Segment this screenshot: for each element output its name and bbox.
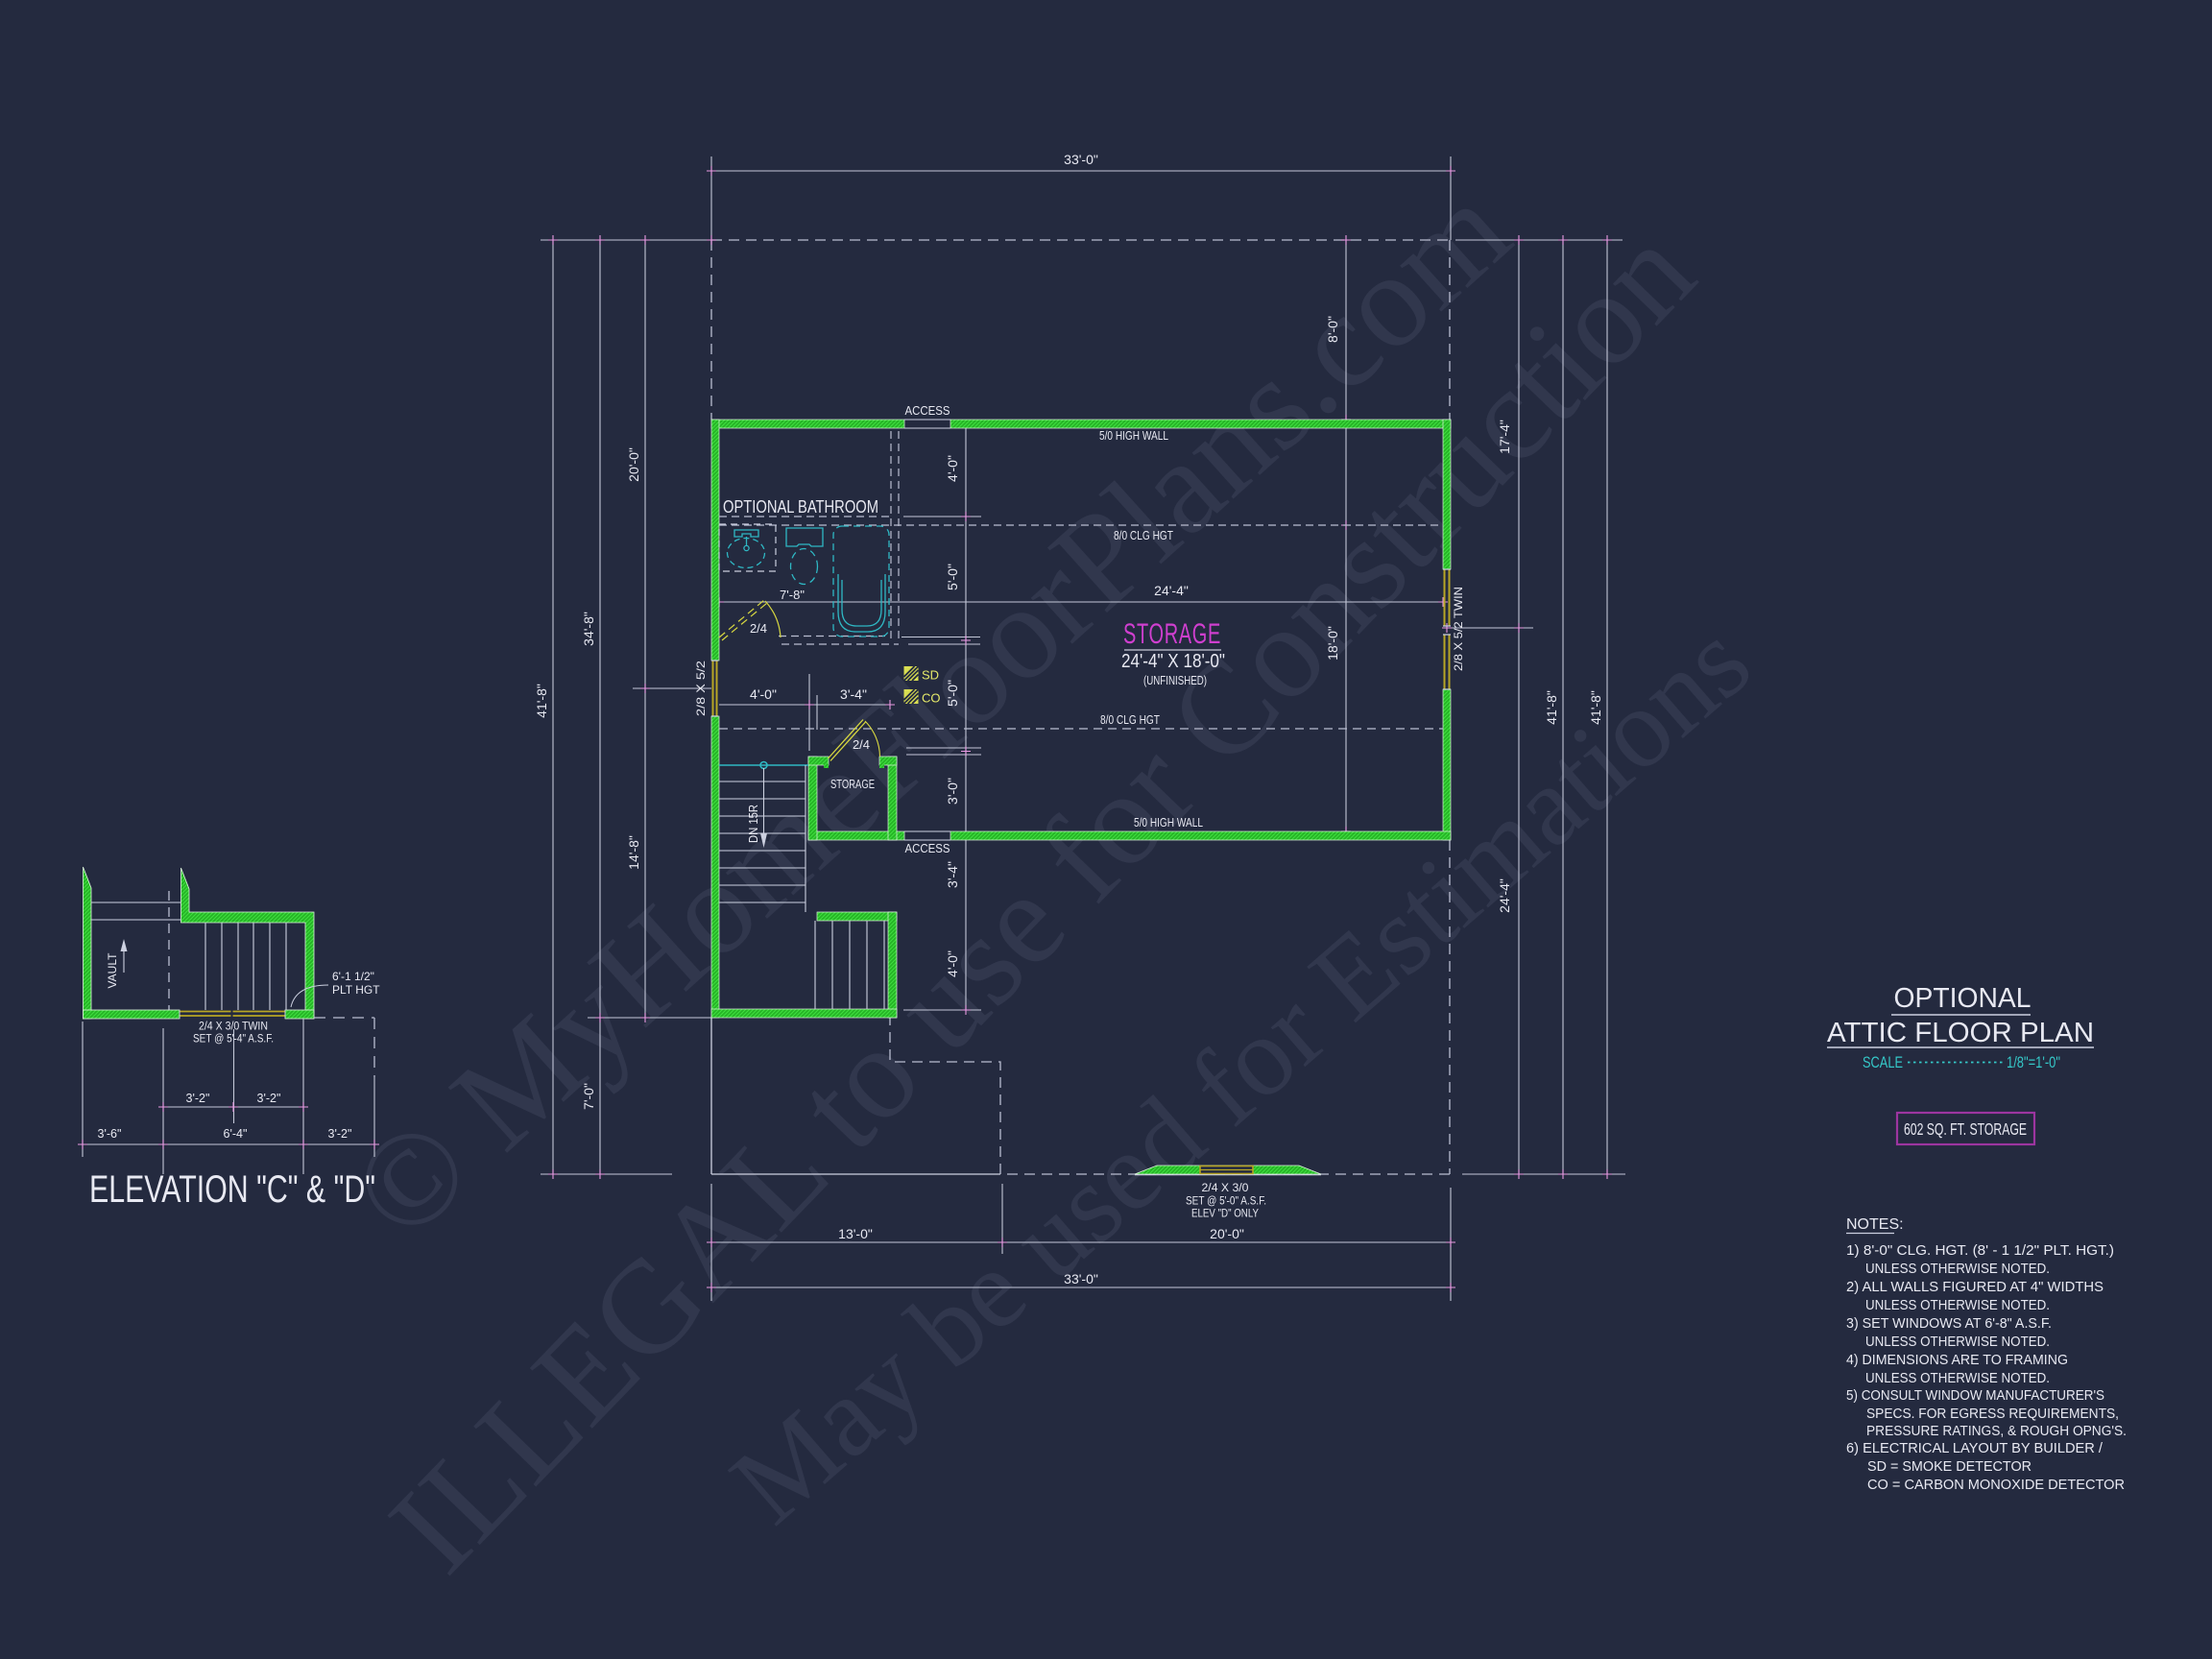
svg-text:7'-0": 7'-0" xyxy=(581,1083,596,1110)
svg-text:3'-2": 3'-2" xyxy=(186,1092,210,1105)
svg-text:SET @ 5'-0" A.S.F.: SET @ 5'-0" A.S.F. xyxy=(1186,1196,1266,1208)
svg-text:41'-8": 41'-8" xyxy=(1544,690,1559,725)
svg-text:CO: CO xyxy=(922,691,941,706)
svg-text:PLT HGT: PLT HGT xyxy=(332,983,380,997)
svg-text:41'-8": 41'-8" xyxy=(534,684,549,718)
svg-text:5/0 HIGH WALL: 5/0 HIGH WALL xyxy=(1099,429,1168,443)
svg-text:7'-8": 7'-8" xyxy=(780,588,805,602)
svg-text:3'-4": 3'-4" xyxy=(840,686,867,702)
svg-text:OPTIONAL: OPTIONAL xyxy=(1894,983,2032,1014)
svg-text:33'-0": 33'-0" xyxy=(1064,1271,1098,1286)
svg-text:5'-0": 5'-0" xyxy=(945,564,960,590)
svg-text:SD: SD xyxy=(922,668,939,683)
svg-text:2/4: 2/4 xyxy=(853,737,870,752)
svg-text:4'-0": 4'-0" xyxy=(945,950,960,977)
svg-text:3'-2": 3'-2" xyxy=(328,1127,352,1141)
svg-text:4'-0": 4'-0" xyxy=(945,455,960,482)
svg-text:602 SQ. FT. STORAGE: 602 SQ. FT. STORAGE xyxy=(1904,1119,2027,1139)
svg-text:24'-4": 24'-4" xyxy=(1497,878,1512,913)
svg-text:24'-4": 24'-4" xyxy=(1154,583,1189,598)
svg-text:2/4: 2/4 xyxy=(750,621,767,636)
svg-text:ATTIC FLOOR PLAN: ATTIC FLOOR PLAN xyxy=(1827,1018,2094,1048)
svg-text:1/8"=1'-0": 1/8"=1'-0" xyxy=(2007,1053,2060,1071)
svg-text:17'-4": 17'-4" xyxy=(1497,420,1512,454)
svg-text:3) SET WINDOWS AT 6'-8" A.S.F.: 3) SET WINDOWS AT 6'-8" A.S.F. xyxy=(1846,1315,2052,1332)
svg-text:UNLESS OTHERWISE NOTED.: UNLESS OTHERWISE NOTED. xyxy=(1865,1334,2050,1350)
svg-text:3'-0": 3'-0" xyxy=(945,778,960,805)
svg-text:PRESSURE RATINGS, & ROUGH OPNG: PRESSURE RATINGS, & ROUGH OPNG'S. xyxy=(1866,1423,2127,1439)
svg-text:2/8 X 5/2: 2/8 X 5/2 xyxy=(694,661,708,716)
svg-text:6'-1 1/2": 6'-1 1/2" xyxy=(332,970,374,983)
svg-text:2) ALL WALLS FIGURED AT 4" WI: 2) ALL WALLS FIGURED AT 4" WIDTHS xyxy=(1846,1279,2104,1295)
svg-text:8/0 CLG HGT: 8/0 CLG HGT xyxy=(1100,713,1160,727)
svg-text:NOTES:: NOTES: xyxy=(1846,1216,1904,1233)
svg-text:OPTIONAL BATHROOM: OPTIONAL BATHROOM xyxy=(723,497,878,517)
svg-text:4) DIMENSIONS ARE TO FRAMING: 4) DIMENSIONS ARE TO FRAMING xyxy=(1846,1352,2068,1368)
svg-text:SCALE: SCALE xyxy=(1863,1053,1903,1071)
svg-text:UNLESS OTHERWISE NOTED.: UNLESS OTHERWISE NOTED. xyxy=(1865,1297,2050,1313)
svg-text:3'-4": 3'-4" xyxy=(945,861,960,888)
svg-text:DN 15R: DN 15R xyxy=(747,805,760,843)
svg-text:STORAGE: STORAGE xyxy=(1123,618,1221,650)
svg-text:18'-0": 18'-0" xyxy=(1325,626,1340,661)
svg-text:CO = CARBON MONOXIDE DETECTOR: CO = CARBON MONOXIDE DETECTOR xyxy=(1867,1477,2125,1493)
svg-text:SPECS. FOR EGRESS REQUIREMENTS: SPECS. FOR EGRESS REQUIREMENTS, xyxy=(1866,1406,2119,1422)
svg-text:4'-0": 4'-0" xyxy=(750,686,777,702)
svg-text:1) 8'-0" CLG. HGT. (8' - 1 1/: 1) 8'-0" CLG. HGT. (8' - 1 1/2" PLT. HGT… xyxy=(1846,1242,2114,1259)
svg-text:8/0 CLG HGT: 8/0 CLG HGT xyxy=(1114,529,1173,542)
svg-text:34'-8": 34'-8" xyxy=(581,612,596,646)
svg-text:UNLESS OTHERWISE NOTED.: UNLESS OTHERWISE NOTED. xyxy=(1865,1261,2050,1277)
svg-text:14'-8": 14'-8" xyxy=(626,835,641,870)
svg-text:20'-0": 20'-0" xyxy=(626,447,641,482)
svg-text:5/0 HIGH WALL: 5/0 HIGH WALL xyxy=(1134,816,1203,829)
svg-text:13'-0": 13'-0" xyxy=(838,1226,873,1241)
svg-text:2/4 X 3/0: 2/4 X 3/0 xyxy=(1202,1183,1249,1194)
svg-text:8'-0": 8'-0" xyxy=(1325,316,1340,343)
svg-text:STORAGE: STORAGE xyxy=(830,778,875,791)
svg-text:24'-4" X 18'-0": 24'-4" X 18'-0" xyxy=(1121,651,1225,672)
svg-text:5'-0": 5'-0" xyxy=(945,680,960,707)
svg-text:33'-0": 33'-0" xyxy=(1064,152,1098,167)
svg-text:41'-8": 41'-8" xyxy=(1588,690,1603,725)
svg-text:3'-2": 3'-2" xyxy=(257,1092,281,1105)
svg-text:(UNFINISHED): (UNFINISHED) xyxy=(1143,673,1207,687)
svg-text:2/8 X 5/2 TWIN: 2/8 X 5/2 TWIN xyxy=(1452,587,1465,671)
svg-text:VAULT: VAULT xyxy=(106,952,119,989)
svg-text:ACCESS: ACCESS xyxy=(905,841,950,855)
svg-text:ELEVATION "C" & "D": ELEVATION "C" & "D" xyxy=(89,1168,375,1211)
svg-text:20'-0": 20'-0" xyxy=(1210,1226,1244,1241)
svg-text:5) CONSULT WINDOW MANUFACTURER: 5) CONSULT WINDOW MANUFACTURER'S xyxy=(1846,1387,2104,1404)
svg-text:6) ELECTRICAL LAYOUT BY BUILDE: 6) ELECTRICAL LAYOUT BY BUILDER / xyxy=(1846,1440,2104,1456)
svg-text:ELEV "D" ONLY: ELEV "D" ONLY xyxy=(1191,1209,1259,1220)
svg-text:3'-6": 3'-6" xyxy=(98,1127,122,1141)
svg-text:UNLESS OTHERWISE NOTED.: UNLESS OTHERWISE NOTED. xyxy=(1865,1370,2050,1386)
svg-text:ACCESS: ACCESS xyxy=(905,403,950,418)
svg-text:SD = SMOKE DETECTOR: SD = SMOKE DETECTOR xyxy=(1867,1458,2032,1475)
svg-text:6'-4": 6'-4" xyxy=(224,1127,248,1141)
